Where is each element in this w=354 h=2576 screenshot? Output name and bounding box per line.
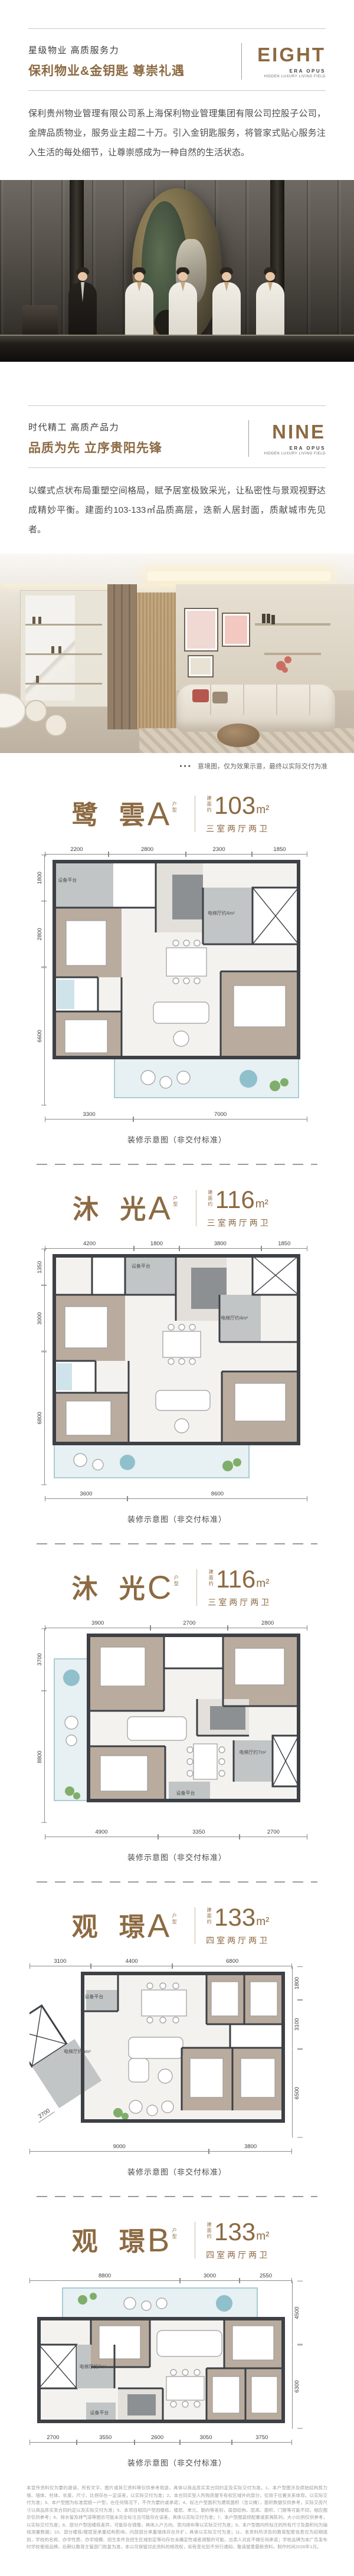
divider-line	[28, 467, 326, 468]
dimension-label: 2700	[240, 1829, 307, 1837]
room-label-equipment: 设备平台	[90, 2410, 109, 2416]
dimensions-top: 2200280023001850	[45, 844, 307, 855]
dimension-label: 2700	[150, 1620, 228, 1628]
area-value: 103	[214, 793, 255, 818]
plan-title: 沐 光 A 户型 建面约 116 m² 三室两厅两卫	[0, 1187, 354, 1229]
area-unit: m²	[255, 1198, 268, 1211]
title-divider	[195, 2222, 195, 2258]
floorplan-figure: 4200180038001850 135030006800	[29, 1238, 324, 1499]
dimensions-right: 45006300	[292, 2281, 307, 2428]
caption-text: 意境图，仅为效果示意，最终以实际交付为准	[198, 763, 327, 770]
dimension-label: 3800	[209, 2143, 292, 2152]
art-frame	[222, 613, 250, 647]
floorplan-drawing: 电梯厅约7m² 设备平台	[29, 2281, 292, 2428]
floorplan-svg	[29, 2281, 292, 2428]
dimension-label: 4200	[45, 1240, 134, 1249]
plan-variant: A	[147, 799, 169, 829]
floorplan-drawing: 电梯厅约7m² 设备平台	[45, 1628, 307, 1823]
area-value: 116	[215, 1187, 255, 1212]
dimensions-top: 4200180038001850	[45, 1238, 307, 1249]
floorplan-block-luyun-a: 鹭 雲 A 户型 建面约 103 m² 三室两厅两卫 2200280023001…	[0, 793, 354, 1145]
section-nine-title: 品质为先 立序贵阳先锋	[28, 438, 162, 456]
area-unit: m²	[256, 1577, 269, 1590]
staff-attendant	[166, 267, 199, 341]
room-label-elevator: 电梯厅约6m²	[64, 2048, 91, 2055]
dimension-label: 8600	[127, 1491, 307, 1499]
art-frame	[184, 608, 218, 652]
area-prefix: 建面约	[207, 1190, 214, 1207]
staff-attendant	[210, 267, 243, 341]
room-label-equipment: 设备平台	[58, 877, 77, 883]
plan-title: 沐 光 C 户型 建面约 116 m² 三室两厅两卫	[0, 1567, 354, 1608]
area-unit: m²	[256, 1916, 269, 1929]
eight-logo: EIGHT ERA OPUS HIDDEN LUXURY LIVING FIEL…	[241, 43, 326, 80]
plan-variant: A	[147, 1911, 169, 1940]
flowers	[284, 656, 291, 663]
staff-butler	[66, 267, 99, 341]
title-divider	[196, 1569, 197, 1606]
art-frame	[188, 655, 214, 677]
floorplan-figure: 390027002800 37008800	[29, 1618, 324, 1837]
dimension-label: 3000	[37, 1285, 45, 1351]
plan-title: 观 璟 A 户型 建面约 133 m² 四室两厅两卫	[0, 1905, 354, 1946]
dimensions-left: 180028006600	[29, 855, 45, 1105]
dimension-label: 2800	[37, 901, 45, 967]
dimensions-left: 135030006800	[29, 1249, 45, 1485]
plan-name: 沐 光	[72, 1576, 152, 1602]
dimension-label: 3000	[180, 2273, 240, 2281]
dimension-label: 1350	[37, 1249, 45, 1285]
dimensions-top: 390027002800	[45, 1618, 307, 1628]
room-label-elevator: 电梯厅约7m²	[239, 1749, 266, 1756]
room-label-equipment: 设备平台	[84, 1994, 103, 2000]
plan-spec: 三室两厅两卫	[207, 1217, 281, 1229]
plan-variant: C	[147, 1573, 171, 1602]
photo-caption: ●●●意境图，仅为效果示意，最终以实际交付为准	[27, 761, 327, 771]
dimension-label: 3300	[45, 1111, 133, 1120]
room-label-equipment: 设备平台	[176, 1790, 195, 1796]
dimension-label: 3100	[29, 1958, 91, 1966]
dimension-label: 3800	[179, 1240, 261, 1249]
floorplan-figure: 880030002550	[29, 2270, 324, 2443]
section-eight-eyebrow: 星级物业 高质服务力	[28, 44, 185, 56]
living-room-photo	[0, 554, 354, 753]
plan-name: 鹭 雲	[72, 803, 152, 829]
dimension-label: 6600	[37, 967, 45, 1105]
area-unit: m²	[256, 804, 269, 817]
promo-page: 星级物业 高质服务力 保利物业&金钥匙 尊崇礼遇 EIGHT ERA OPUS …	[0, 0, 354, 2576]
area-value: 133	[214, 2220, 255, 2244]
floorplan-figure: 310044006800	[29, 1956, 324, 2152]
dimension-label: 1800	[37, 855, 45, 901]
section-eight-title: 保利物业&金钥匙 尊崇礼遇	[28, 61, 185, 79]
divider-line	[28, 90, 326, 91]
floorplan-drawing: 设备平台 电梯厅约4m²	[45, 1249, 307, 1485]
plan-variant: A	[148, 1193, 170, 1223]
plan-spec: 三室两厅两卫	[208, 1596, 282, 1608]
dimension-label: 2200	[45, 846, 109, 855]
area-value: 133	[214, 1905, 255, 1930]
plan-name: 观 璟	[72, 1914, 152, 1940]
dimension-label: 1800	[292, 1966, 300, 2000]
staff-attendant	[123, 267, 156, 341]
floorplan-svg	[45, 855, 307, 1105]
dimensions-bottom: 27003550260030503750	[29, 2432, 292, 2443]
dashed-divider	[37, 2196, 317, 2197]
dimension-label: 7000	[133, 1111, 307, 1120]
legal-disclaimer: 本宣传资料仅为要约邀请，所有文字、图片或其它资料等仅供参考用途，具体以商品房买卖…	[27, 2485, 327, 2551]
room-label-elevator: 电梯厅约4m²	[221, 1315, 248, 1321]
floorplan-block-guanjing-b: 观 璟 B 户型 建面约 133 m² 四室两厅两卫 880030002550	[0, 2220, 354, 2468]
plan-caption: 装修示意图（非交付标准）	[0, 2166, 354, 2177]
dimension-label: 3600	[45, 1491, 127, 1499]
dimensions-top: 880030002550	[29, 2270, 292, 2281]
dimension-label: 4400	[91, 1958, 173, 1966]
flowers	[282, 667, 288, 673]
dining-chair	[25, 700, 47, 722]
area-unit: m²	[256, 2230, 269, 2243]
dimension-label: 6500	[292, 2049, 300, 2138]
dashed-divider	[37, 1881, 317, 1883]
dimension-label: 2300	[186, 846, 252, 855]
dimensions-top: 310044006800	[29, 1956, 292, 1966]
dimension-label: 3700	[37, 1628, 45, 1691]
nine-logo-subtitle: ERA OPUS	[264, 446, 326, 451]
section-nine-header: 时代精工 高质产品力 品质为先 立序贵阳先锋 NINE ERA OPUS HID…	[0, 406, 354, 467]
dimension-label: 2800	[228, 1620, 307, 1628]
plan-caption: 装修示意图（非交付标准）	[0, 1134, 354, 1145]
dimension-label: 4500	[292, 2281, 300, 2345]
plan-type-label: 户型	[171, 2228, 178, 2240]
nine-logo-text: NINE	[264, 422, 326, 441]
dimension-label: 6800	[172, 1958, 292, 1966]
dimension-label: 1850	[252, 846, 307, 855]
plan-type-label: 户型	[171, 801, 178, 813]
section-eight-body: 保利贵州物业管理有限公司系上海保利物业管理集团有限公司控股子公司，金牌品质物业，…	[28, 104, 326, 162]
area-prefix: 建面约	[206, 2222, 212, 2240]
dashed-divider	[37, 1164, 317, 1165]
nine-logo-tagline: HIDDEN LUXURY LIVING FIELD	[264, 452, 326, 456]
plan-spec: 三室两厅两卫	[206, 823, 282, 834]
dimension-label: 3050	[180, 2434, 231, 2443]
dashed-divider	[37, 1543, 317, 1544]
reception-staff-photo	[0, 180, 354, 362]
title-divider	[196, 1190, 196, 1226]
room-label-equipment: 设备平台	[132, 1263, 150, 1269]
plan-name: 观 璟	[72, 2229, 152, 2255]
wall-shelf	[264, 653, 321, 655]
floorplan-block-muguang-a: 沐 光 A 户型 建面约 116 m² 三室两厅两卫 4200180038001…	[0, 1187, 354, 1524]
display-cabinet	[20, 590, 109, 707]
title-divider	[195, 796, 195, 832]
dimensions-bottom: 36008600	[45, 1488, 307, 1499]
plan-type-label: 户型	[171, 1913, 178, 1925]
dimension-label: 2700	[29, 2434, 77, 2443]
dimensions-bottom: 490033502700	[45, 1827, 307, 1837]
section-nine-eyebrow: 时代精工 高质产品力	[28, 421, 162, 433]
dimension-label: 1800	[134, 1240, 179, 1249]
dimensions-bottom: 33007000	[45, 1109, 307, 1120]
dimension-label: 3900	[45, 1620, 150, 1628]
plan-caption: 装修示意图（非交付标准）	[0, 1513, 354, 1524]
dimension-label: 3100	[292, 2000, 300, 2049]
brass-mesh-cabinet	[137, 593, 176, 729]
dimension-label: 6300	[292, 2345, 300, 2428]
area-prefix: 建面约	[206, 1907, 212, 1925]
sofa	[177, 685, 335, 732]
plan-type-label: 户型	[172, 1196, 179, 1207]
floorplan-figure: 2200280023001850 180028006600	[29, 844, 324, 1120]
section-eight-header: 星级物业 高质服务力 保利物业&金钥匙 尊崇礼遇 EIGHT ERA OPUS …	[0, 29, 354, 90]
area-value: 116	[216, 1567, 255, 1592]
dimension-label: 3750	[232, 2434, 292, 2443]
plan-spec: 四室两厅两卫	[206, 1935, 282, 1946]
dining-chair	[45, 714, 67, 737]
dimension-label: 4900	[45, 1829, 158, 1837]
plan-variant: B	[147, 2225, 169, 2255]
wall-shelf	[255, 623, 330, 626]
reception-desk	[0, 335, 354, 362]
dimension-label: 2800	[109, 846, 186, 855]
cove-light	[147, 571, 330, 581]
eight-logo-subtitle: ERA OPUS	[257, 68, 326, 74]
floorplan-drawing: 设备平台 电梯厅约6m² 2700	[29, 1966, 292, 2138]
dimension-label: 2550	[240, 2273, 292, 2281]
floorplan-block-muguang-c: 沐 光 C 户型 建面约 116 m² 三室两厅两卫 390027002800 …	[0, 1567, 354, 1863]
plan-title: 观 璟 B 户型 建面约 133 m² 四室两厅两卫	[0, 2220, 354, 2261]
dimension-label: 8800	[29, 2273, 180, 2281]
antique-phone-table	[22, 305, 58, 336]
coffee-table	[217, 724, 260, 747]
dimension-label: 2600	[135, 2434, 181, 2443]
plan-caption: 装修示意图（非交付标准）	[0, 2457, 354, 2468]
plan-name: 沐 光	[73, 1197, 153, 1223]
dimension-label: 6800	[37, 1351, 45, 1485]
nine-logo: NINE ERA OPUS HIDDEN LUXURY LIVING FIELD	[248, 420, 326, 457]
eight-logo-tagline: HIDDEN LUXURY LIVING FIELD	[257, 75, 326, 78]
floorplan-svg	[45, 1249, 307, 1485]
wood-panel	[107, 584, 137, 729]
area-prefix: 建面约	[206, 796, 212, 813]
section-nine-body: 以蝶式点状布局重塑空间格局，赋予居室极致采光，让私密性与景观视野达成精妙平衡。建…	[28, 481, 326, 539]
dimension-label: 8800	[37, 1691, 45, 1823]
room-label-elevator: 电梯厅约7m²	[80, 2364, 107, 2370]
eight-logo-text: EIGHT	[257, 45, 326, 64]
dimensions-bottom: 90003800	[29, 2141, 292, 2152]
area-prefix: 建面约	[208, 1569, 214, 1587]
staff-attendant	[254, 267, 287, 341]
dimensions-left: 37008800	[29, 1628, 45, 1823]
plan-spec: 四室两厅两卫	[206, 2249, 282, 2261]
caption-dots-icon: ●●●	[179, 764, 192, 768]
floorplan-block-guanjing-a: 观 璟 A 户型 建面约 133 m² 四室两厅两卫 310044006800	[0, 1905, 354, 2177]
dimension-label: 1850	[261, 1240, 307, 1249]
title-divider	[195, 1907, 195, 1944]
room-label-elevator: 电梯厅约4m²	[208, 910, 235, 917]
dimension-label: 9000	[29, 2143, 209, 2152]
plan-caption: 装修示意图（非交付标准）	[0, 1851, 354, 1863]
plan-type-label: 户型	[173, 1575, 179, 1587]
floorplan-drawing: 设备平台 电梯厅约4m²	[45, 855, 307, 1105]
dimensions-right: 180031006500	[292, 1966, 307, 2138]
plan-title: 鹭 雲 A 户型 建面约 103 m² 三室两厅两卫	[0, 793, 354, 834]
dimension-label: 3550	[77, 2434, 135, 2443]
dimension-label: 3350	[158, 1829, 240, 1837]
